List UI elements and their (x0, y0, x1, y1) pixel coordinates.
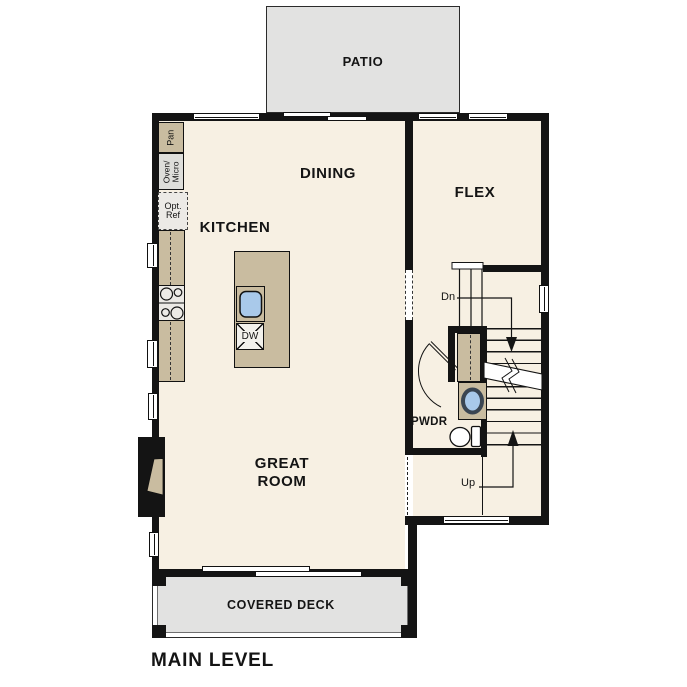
wall-strip-left (448, 333, 455, 382)
window (539, 285, 549, 313)
plan-title: MAIN LEVEL (151, 650, 371, 672)
room-label-dining: DINING (278, 165, 378, 182)
window (468, 113, 508, 120)
pantry-label-wrap: Pan (158, 122, 184, 153)
room-label-great-room: GREAT ROOM (232, 455, 332, 491)
wall-powder-bottom (405, 448, 487, 455)
wall-right (541, 113, 549, 525)
patio-sliding-door (283, 112, 331, 117)
window (418, 113, 458, 120)
wall-dining-flex-upper (405, 113, 413, 270)
stair-strip-dashed (470, 335, 471, 380)
patio-sliding-door (327, 116, 367, 121)
opt-ref-label-wrap: Opt. Ref (158, 192, 188, 230)
window (443, 516, 510, 524)
wall-dining-flex-lower (405, 320, 413, 455)
room-label-patio: PATIO (313, 55, 413, 70)
powder-sink-counter (458, 382, 487, 420)
window (147, 243, 158, 268)
deck-post (152, 625, 166, 638)
stair-strip (457, 333, 481, 382)
floor-plan: DW (0, 0, 687, 687)
room-label-powder: PWDR (411, 416, 455, 429)
stair-treads (487, 328, 541, 455)
dishwasher-label: DW (241, 331, 260, 342)
stairs-up-label: Up (461, 477, 475, 489)
pantry-label: Pan (166, 129, 175, 145)
room-label-flex: FLEX (425, 184, 525, 201)
room-label-kitchen: KITCHEN (185, 219, 285, 236)
window (193, 113, 260, 120)
island-sink-unit (236, 286, 265, 322)
open-boundary-dashed (407, 457, 408, 515)
wall-flex-bottom (483, 265, 541, 272)
cased-opening (405, 270, 413, 320)
stairs-down-label: Dn (441, 291, 455, 303)
wall-deck-right (408, 525, 417, 638)
dishwasher: DW (236, 323, 264, 350)
cooktop-box (158, 285, 185, 321)
room-label-covered-deck: COVERED DECK (206, 598, 356, 612)
room-area-flex-hall (413, 120, 541, 517)
oven-micro-label-wrap: Oven/ Micro (158, 153, 184, 190)
window (149, 532, 159, 557)
fireplace (138, 437, 165, 517)
opt-ref-label: Opt. Ref (164, 202, 181, 221)
window (147, 340, 158, 368)
oven-micro-label: Oven/ Micro (162, 160, 180, 183)
window (148, 393, 158, 420)
deck-sliding-door (255, 571, 362, 577)
